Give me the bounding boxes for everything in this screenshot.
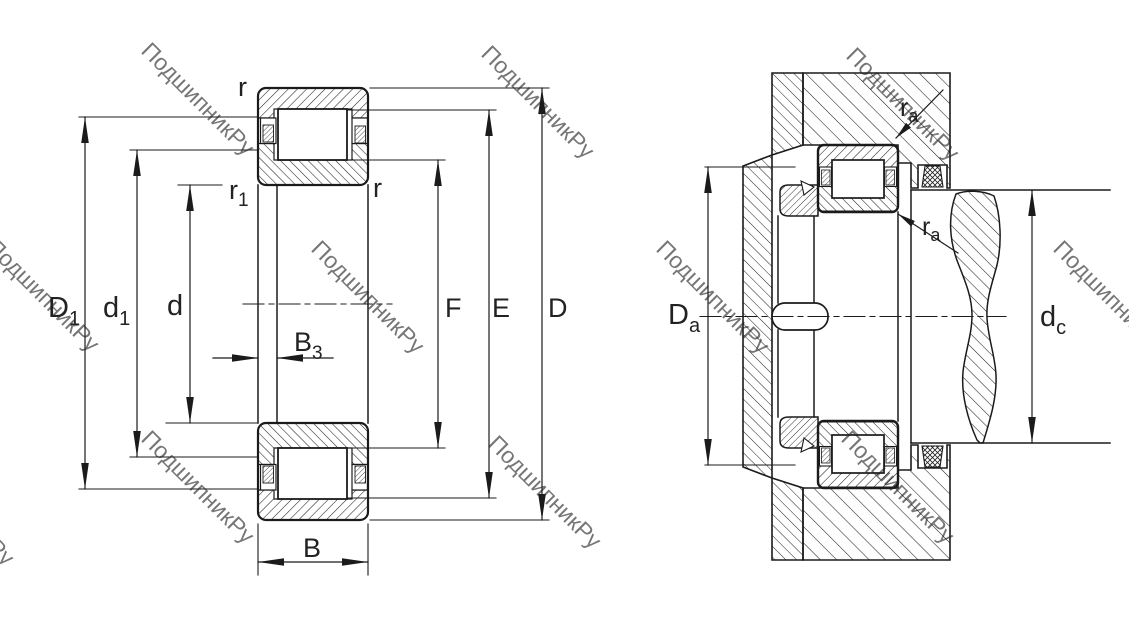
mounted-cage-ul-hatch [822,170,831,185]
watermark-text: ПодшипникРу [476,40,600,164]
watermark-text: ПодшипникРу [1048,235,1129,359]
dim-label-ra-bottom: ra [922,213,941,245]
dim-label-Da: Da [668,299,701,337]
shaft-break-section [951,191,1001,443]
watermark-text: ПодшипникРу [0,233,105,357]
cage-bottom-right-hatch [355,466,366,483]
cage-top-left-hatch [263,125,274,142]
angle-ring-lower [780,417,818,448]
bearing-dimension-drawing: r r1 r D1 d1 d B3 B F E D [0,0,1129,632]
mounted-roller-upper [832,160,884,198]
roller-top [278,109,347,160]
dim-label-dc: dc [1040,301,1066,339]
cage-top-right-hatch [355,126,366,143]
mounted-cage-ll-hatch [822,448,831,463]
watermark-text: ПодшипникРу [0,447,20,571]
dim-label-F: F [445,293,462,323]
dim-label-B: B [303,533,321,563]
dim-label-E: E [492,293,510,323]
seal-lower [922,446,943,467]
dim-label-r-top: r [238,72,247,102]
angle-ring-upper [780,185,818,216]
watermark-text: ПодшипникРу [483,430,607,554]
dim-label-D: D [548,293,568,323]
cage-bottom-left-hatch [263,466,274,483]
mounted-cage-ur-hatch [886,170,895,185]
left-view-bearing-section: r r1 r D1 d1 d B3 B F E D [48,72,568,575]
dim-label-r-right: r [373,173,382,203]
seal-upper [922,166,943,187]
dim-label-d1: d1 [103,292,130,330]
dim-label-r1: r1 [229,175,249,211]
watermark-text: ПодшипникРу [136,425,260,549]
dim-label-d: d [167,290,183,322]
roller-bottom [278,448,347,499]
drawing-canvas: r r1 r D1 d1 d B3 B F E D [0,0,1129,632]
